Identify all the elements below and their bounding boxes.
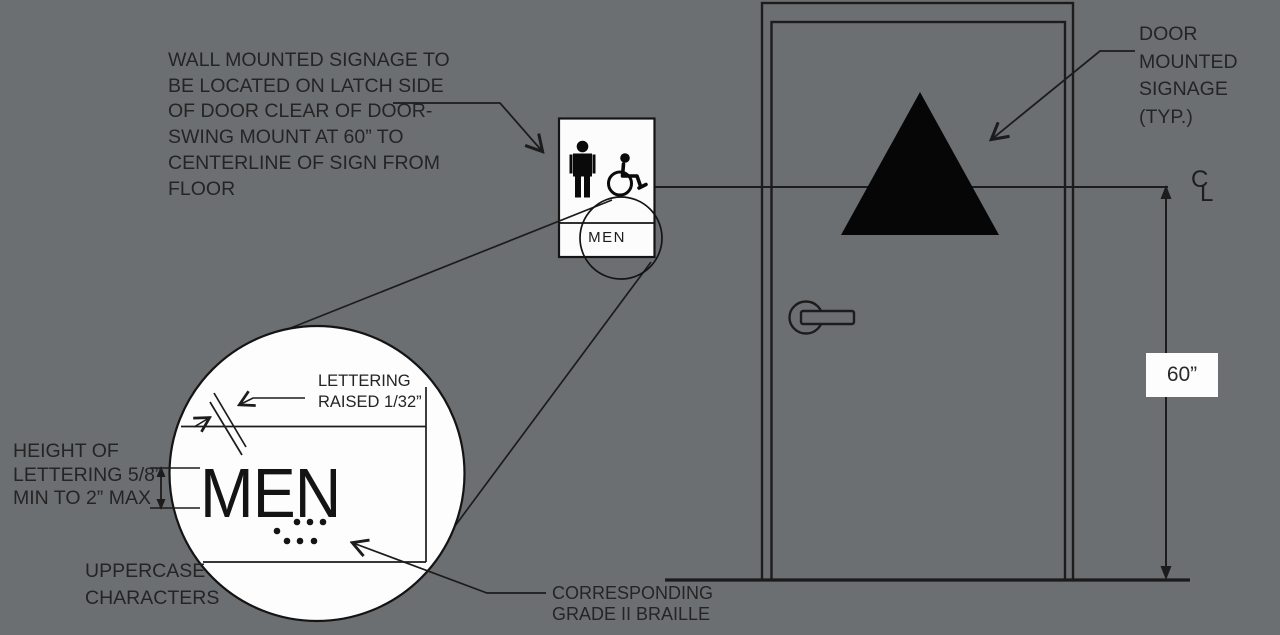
callout-tangent-bottom — [452, 262, 651, 530]
uppercase-characters-note: UPPERCASE CHARACTERS — [85, 558, 219, 612]
detail-men-text: MEN — [200, 458, 340, 528]
door-frame — [762, 3, 1073, 580]
grade2-braille-note: CORRESPONDING GRADE II BRAILLE — [552, 583, 713, 624]
callout-tangent-top — [243, 200, 612, 347]
door-note-leader-arrow — [992, 51, 1135, 139]
centerline-symbol-l: L — [1200, 180, 1213, 208]
wall-mounted-signage-note: WALL MOUNTED SIGNAGE TO BE LOCATED ON LA… — [168, 48, 450, 202]
door-triangle-sign-icon — [841, 92, 999, 235]
door-mounted-signage-note: DOOR MOUNTED SIGNAGE (TYP.) — [1139, 21, 1238, 131]
lettering-raised-note: LETTERING RAISED 1/32” — [318, 371, 422, 412]
signage-detail-diagram: WALL MOUNTED SIGNAGE TO BE LOCATED ON LA… — [0, 0, 1280, 635]
dimension-arrow-down — [1161, 566, 1172, 580]
dimension-60-label: 60” — [1146, 353, 1218, 397]
lettering-height-note: HEIGHT OF LETTERING 5/8” MIN TO 2” MAX — [13, 440, 161, 511]
door-handle-icon — [790, 302, 855, 334]
sign-men-text: MEN — [559, 229, 655, 246]
